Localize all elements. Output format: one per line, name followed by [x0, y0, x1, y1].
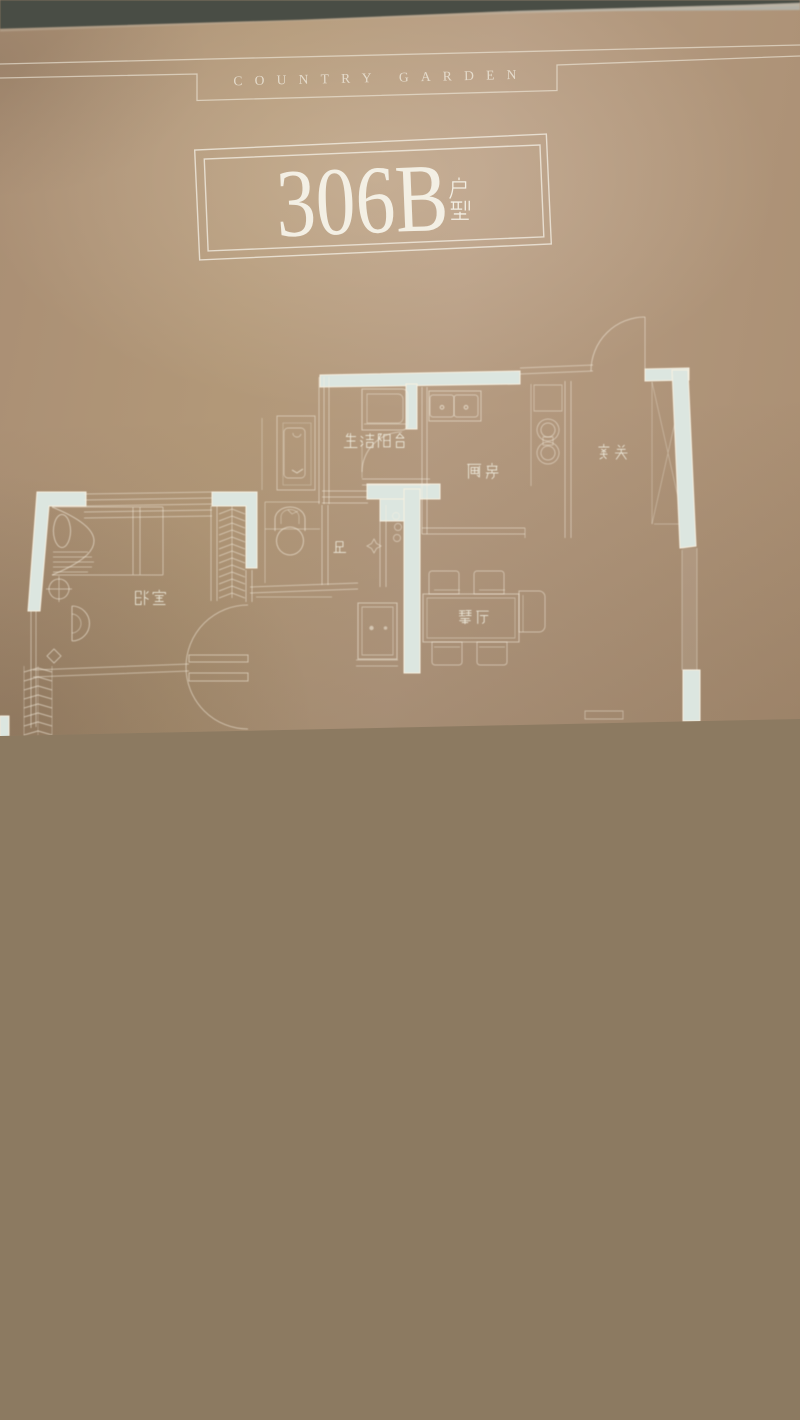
- svg-text:306B: 306B: [274, 144, 450, 258]
- svg-text:COUNTRY GARDEN: COUNTRY GARDEN: [233, 67, 528, 89]
